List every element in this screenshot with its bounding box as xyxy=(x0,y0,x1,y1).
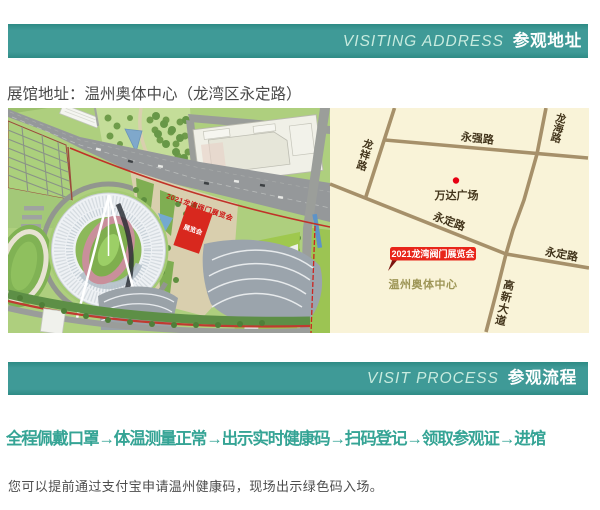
svg-text:万达广场: 万达广场 xyxy=(434,188,479,202)
svg-text:2021龙湾阀门展览会: 2021龙湾阀门展览会 xyxy=(391,248,475,259)
svg-text:温州奥体中心: 温州奥体中心 xyxy=(389,277,458,291)
